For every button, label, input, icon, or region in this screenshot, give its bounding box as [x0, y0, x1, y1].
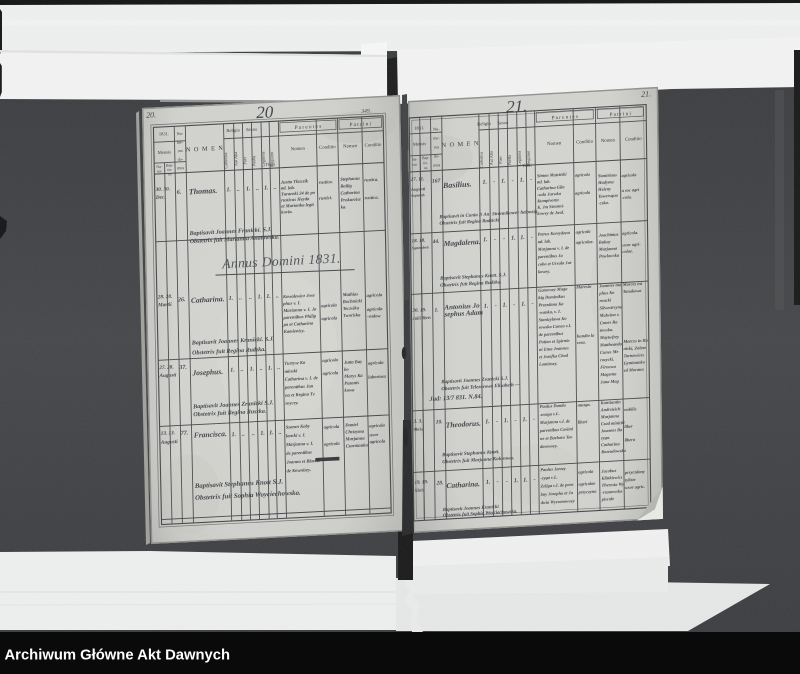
svg-text:Archiwum Główne Akt Dawnych: Archiwum Główne Akt Dawnych — [5, 648, 231, 664]
